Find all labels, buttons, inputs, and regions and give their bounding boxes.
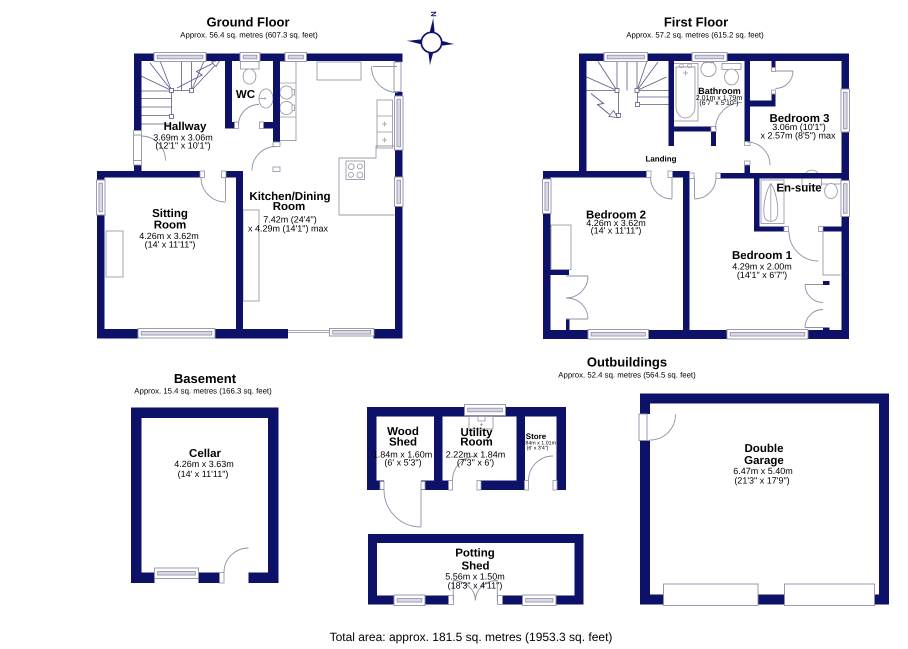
- svg-text:Approx. 52.4 sq. metres (564.5: Approx. 52.4 sq. metres (564.5 sq. feet): [558, 370, 696, 379]
- svg-text:(14' x 11'11"): (14' x 11'11"): [145, 240, 196, 250]
- svg-text:Shed: Shed: [389, 437, 417, 449]
- svg-text:Shed: Shed: [461, 560, 489, 572]
- svg-text:(12'1" x 10'1"): (12'1" x 10'1"): [155, 141, 210, 151]
- svg-text:(6'7" x 5'10"): (6'7" x 5'10"): [699, 99, 738, 107]
- svg-text:(14'1" x 6'7"): (14'1" x 6'7"): [737, 270, 787, 280]
- svg-text:Outbuildings: Outbuildings: [587, 355, 667, 370]
- svg-text:(6' x 3'4"): (6' x 3'4"): [527, 446, 549, 452]
- svg-text:En-suite: En-suite: [776, 183, 821, 195]
- svg-text:N: N: [429, 11, 438, 17]
- svg-text:(6' x 5'3"): (6' x 5'3"): [384, 458, 421, 468]
- svg-text:(7'3" x 6'): (7'3" x 6'): [457, 458, 494, 468]
- svg-text:Hallway: Hallway: [164, 121, 207, 133]
- svg-text:Approx. 15.4 sq. metres (166.3: Approx. 15.4 sq. metres (166.3 sq. feet): [134, 387, 272, 396]
- svg-text:First Floor: First Floor: [664, 14, 728, 29]
- svg-text:Room: Room: [273, 201, 306, 213]
- svg-text:x 2.57m (8'5") max: x 2.57m (8'5") max: [761, 131, 836, 141]
- svg-text:(14' x 11'11"): (14' x 11'11"): [591, 226, 642, 236]
- svg-text:(21'3" x 17'9"): (21'3" x 17'9"): [734, 475, 789, 485]
- svg-text:Ground Floor: Ground Floor: [206, 14, 289, 29]
- svg-text:4.26m x 3.63m: 4.26m x 3.63m: [174, 459, 234, 469]
- svg-text:Basement: Basement: [174, 371, 237, 386]
- svg-text:Room: Room: [154, 220, 187, 232]
- svg-text:Cellar: Cellar: [189, 448, 221, 460]
- svg-text:Approx. 56.4 sq. metres (607.3: Approx. 56.4 sq. metres (607.3 sq. feet): [180, 30, 318, 39]
- svg-text:Landing: Landing: [645, 154, 676, 163]
- svg-text:x 4.29m (14'1") max: x 4.29m (14'1") max: [248, 224, 328, 234]
- svg-text:Total area: approx. 181.5 sq.: Total area: approx. 181.5 sq. metres (19…: [330, 630, 613, 644]
- svg-text:(18'3" x 4'11"): (18'3" x 4'11"): [448, 580, 503, 590]
- svg-text:Double: Double: [745, 443, 784, 455]
- svg-text:Potting: Potting: [455, 548, 495, 560]
- svg-text:Sitting: Sitting: [152, 208, 188, 220]
- svg-text:Room: Room: [460, 437, 493, 449]
- svg-text:(14' x 11'11"): (14' x 11'11"): [178, 469, 229, 479]
- svg-text:WC: WC: [236, 89, 255, 101]
- svg-text:Approx. 57.2 sq. metres (615.2: Approx. 57.2 sq. metres (615.2 sq. feet): [626, 31, 764, 40]
